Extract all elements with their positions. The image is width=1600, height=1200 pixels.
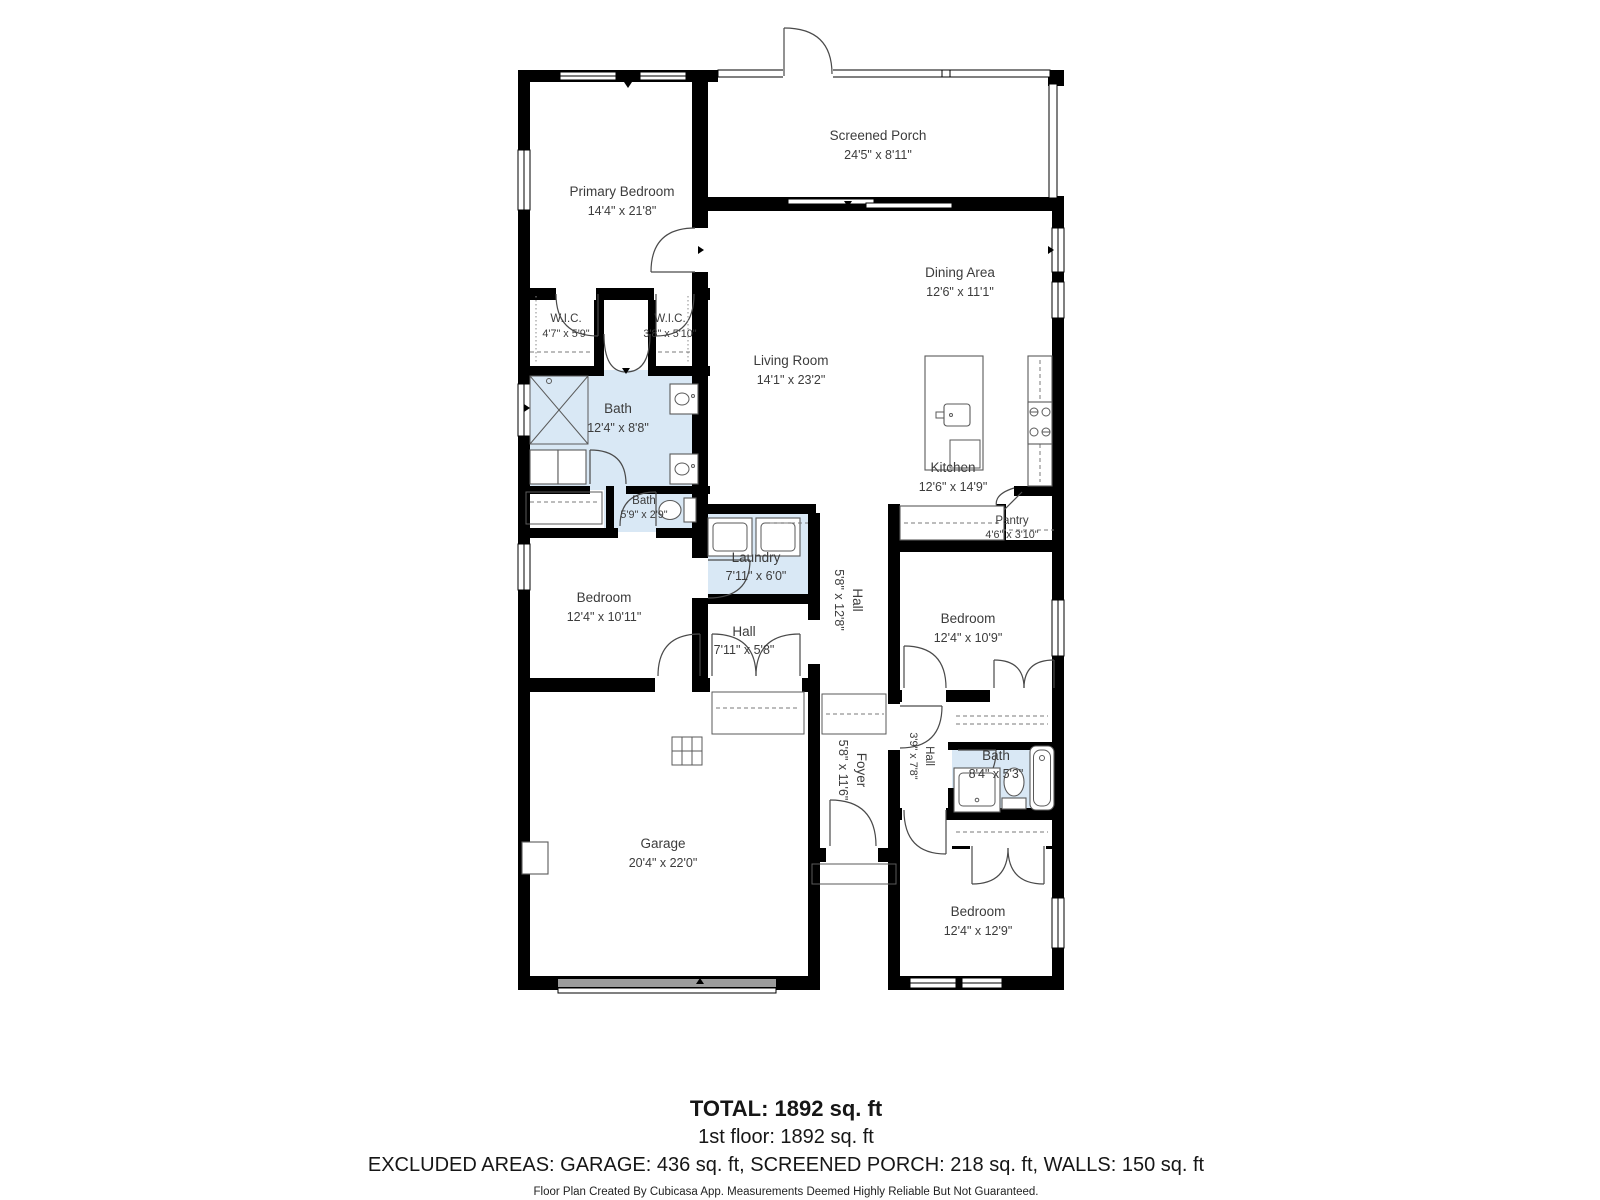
bedroom-right-closet-doors xyxy=(994,660,1054,688)
room-dims: 7'11" x 6'0" xyxy=(726,569,787,583)
window xyxy=(518,150,530,210)
room-dims: 12'4" x 10'9" xyxy=(934,631,1003,645)
room-label-bedroom-left: Bedroom 12'4" x 10'11" xyxy=(567,590,642,624)
room-label-dining-area: Dining Area 12'6" x 11'1" xyxy=(925,265,995,299)
room-name: Dining Area xyxy=(925,265,995,280)
room-dims: 12'6" x 11'1" xyxy=(926,285,994,299)
kitchen-island xyxy=(925,356,983,470)
window xyxy=(518,544,530,590)
room-dims: 12'4" x 12'9" xyxy=(944,924,1013,938)
room-dims: 5'9" x 2'9" xyxy=(620,509,667,521)
total-area-text: TOTAL: 1892 sq. ft xyxy=(0,1096,1586,1122)
garage-door-track xyxy=(558,988,776,993)
room-name: Bath xyxy=(632,495,656,507)
window xyxy=(1052,282,1064,318)
room-label-living-room: Living Room 14'1" x 23'2" xyxy=(753,353,828,387)
room-name: Primary Bedroom xyxy=(569,184,674,199)
room-label-foyer: Foyer 5'8" x 11'6" xyxy=(836,740,869,801)
bath-vanity xyxy=(670,454,698,484)
bathtub xyxy=(1030,746,1054,810)
room-dims: 5'8" x 11'6" xyxy=(836,740,850,801)
room-label-hall-main: Hall 5'8" x 12'8" xyxy=(832,569,865,631)
room-name: Foyer xyxy=(854,753,869,788)
room-dims: 8'4" x 5'3" xyxy=(969,767,1024,781)
window xyxy=(962,978,1002,988)
room-name: Bath xyxy=(982,748,1010,763)
room-dims: 14'1" x 23'2" xyxy=(757,373,826,387)
room-dims: 4'6" x 3'10" xyxy=(985,529,1038,541)
room-label-screened-porch: Screened Porch 24'5" x 8'11" xyxy=(830,128,927,162)
room-name: Bath xyxy=(604,401,632,416)
window xyxy=(640,72,686,80)
room-dims: 12'6" x 14'9" xyxy=(919,480,988,494)
bedroom-right-door xyxy=(904,646,946,688)
room-dims: 4'7" x 5'9" xyxy=(542,328,589,340)
porch-door-gap xyxy=(783,68,833,79)
room-name: Screened Porch xyxy=(830,128,927,143)
attic-access xyxy=(672,737,702,765)
floor-plan-drawing: Primary Bedroom 14'4" x 21'8" Screened P… xyxy=(0,0,1600,1200)
disclaimer-text: Floor Plan Created By Cubicasa App. Meas… xyxy=(0,1186,1586,1198)
window xyxy=(910,978,956,988)
room-name: Hall xyxy=(850,588,865,611)
stove xyxy=(1028,402,1052,444)
room-name: Bedroom xyxy=(951,904,1006,919)
window xyxy=(1052,898,1064,948)
room-name: Pantry xyxy=(995,515,1028,527)
room-name: W.I.C. xyxy=(550,313,581,325)
room-name: Bedroom xyxy=(941,611,996,626)
room-name: Bedroom xyxy=(577,590,632,605)
bath-vanity xyxy=(670,384,698,414)
room-label-bedroom-right: Bedroom 12'4" x 10'9" xyxy=(934,611,1003,645)
floor-area-text: 1st floor: 1892 sq. ft xyxy=(0,1126,1586,1149)
window xyxy=(560,72,616,80)
utility-box xyxy=(522,842,548,874)
room-dims: 14'4" x 21'8" xyxy=(588,204,657,218)
excluded-areas-text: EXCLUDED AREAS: GARAGE: 436 sq. ft, SCRE… xyxy=(0,1154,1586,1177)
room-dims: 12'4" x 8'8" xyxy=(587,421,649,435)
room-dims: 5'8" x 12'8" xyxy=(832,569,846,631)
room-dims: 3'9" x 7'8" xyxy=(907,732,919,779)
room-name: W.I.C. xyxy=(654,313,685,325)
porch-door-arc xyxy=(784,28,832,74)
room-label-hall-rear: Hall 3'9" x 7'8" xyxy=(907,732,935,779)
room-name: Living Room xyxy=(753,353,828,368)
room-name: Hall xyxy=(923,746,935,766)
room-dims: 24'5" x 8'11" xyxy=(844,148,912,162)
window xyxy=(1052,600,1064,656)
linen-cabinet xyxy=(530,450,586,484)
front-door xyxy=(812,800,896,884)
bedroom-bottom-door xyxy=(904,810,946,854)
room-label-primary-bedroom: Primary Bedroom 14'4" x 21'8" xyxy=(569,184,674,218)
bedroom-bottom-closet-doors xyxy=(972,846,1044,884)
room-dims: 20'4" x 22'0" xyxy=(629,856,698,870)
room-name: Hall xyxy=(732,624,755,639)
room-name: Laundry xyxy=(732,550,781,565)
room-name: Garage xyxy=(640,836,685,851)
room-dims: 12'4" x 10'11" xyxy=(567,610,642,624)
room-name: Kitchen xyxy=(930,460,975,475)
garage-door xyxy=(558,979,776,987)
porch-screen-walls xyxy=(718,28,1057,198)
room-label-garage: Garage 20'4" x 22'0" xyxy=(629,836,698,870)
floor-plan-page: Primary Bedroom 14'4" x 21'8" Screened P… xyxy=(0,0,1600,1200)
room-label-hall-small: Hall 7'11" x 5'8" xyxy=(714,624,775,657)
room-label-bedroom-bottom: Bedroom 12'4" x 12'9" xyxy=(944,904,1013,938)
room-label-wic-left: W.I.C. 4'7" x 5'9" xyxy=(542,313,589,340)
room-dims: 3'8" x 5'10" xyxy=(643,328,696,340)
hall-rear-door xyxy=(900,706,942,748)
room-dims: 7'11" x 5'8" xyxy=(714,643,775,657)
kitchen-counter-right xyxy=(1028,356,1052,486)
